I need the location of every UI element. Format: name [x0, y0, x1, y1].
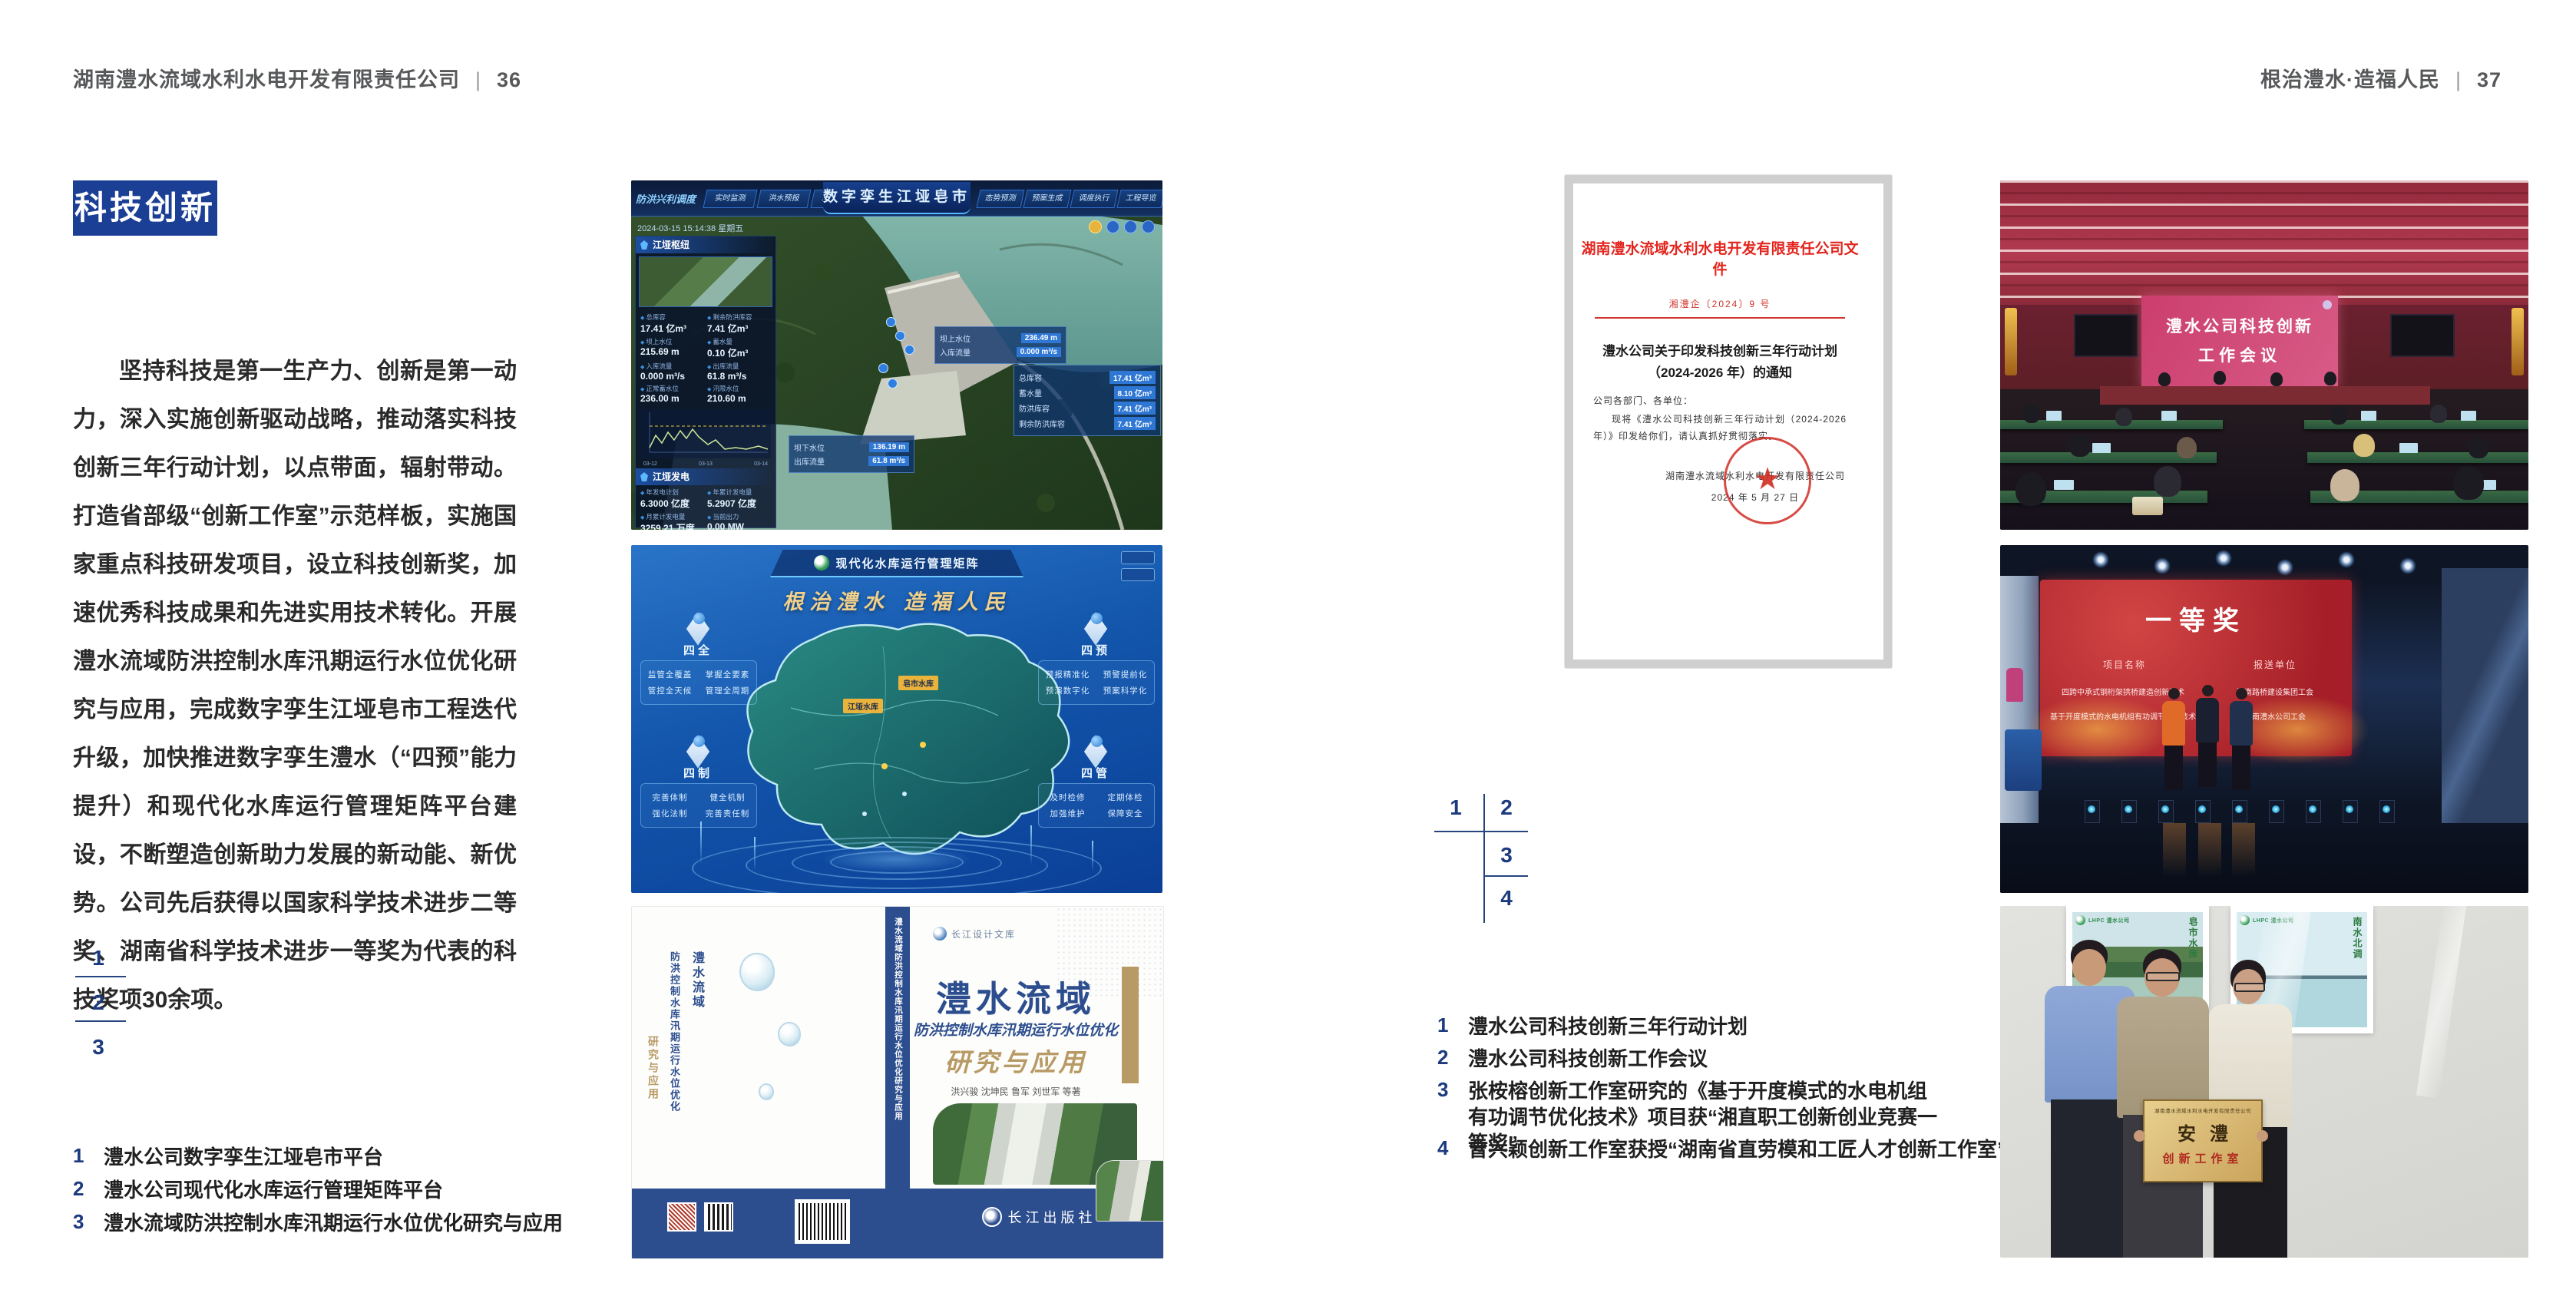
card-item: 定期体检 [1108, 792, 1143, 803]
caption-text: 澧水公司现代化水库运行管理矩阵平台 [104, 1177, 443, 1203]
screen-line-2: 工作会议 [2141, 343, 2338, 366]
book-title-accent: 研究与应用 [910, 1042, 1122, 1079]
stat-value: 7.41 亿m³ [707, 322, 771, 335]
callout-value: 17.41 亿m³ [1109, 371, 1156, 384]
stat-label: 年发电计划 [640, 488, 704, 497]
caption-right-4: 4 曾兴颖创新工作室获授“湖南省直劳模和工匠人才创新工作室” [1437, 1136, 2007, 1162]
name-card [2046, 411, 2062, 421]
stage-light-fixture [2343, 800, 2358, 823]
corner-card-siyu: 预报精准化预警提前化 预演数字化预案科学化 [1038, 660, 1155, 705]
index-divider [1434, 831, 1528, 832]
card-item: 预演数字化 [1046, 685, 1090, 696]
matrix-title-bar: 现代化水库运行管理矩阵 [770, 550, 1023, 577]
card-item: 管控全天候 [648, 685, 693, 696]
panel-title-generation: 江垭发电 [636, 468, 775, 485]
callout-row: 坝下水位136.19 m [794, 441, 909, 453]
figure-index-1: 1 [75, 946, 121, 970]
tissue-box [2132, 497, 2163, 515]
person-head [2324, 372, 2336, 385]
tab-realtime-monitor: 实时监测 [703, 190, 757, 208]
stage-spotlight-icon [2399, 557, 2416, 574]
book-spine: 澧水流域防洪控制水库汛期运行水位优化研究与应用 [885, 907, 910, 1258]
callout-row: 总库容17.41 亿m³ [1019, 371, 1156, 384]
back-cover-title-2: 防洪控制水库汛期运行水位优化 [667, 951, 682, 1113]
person-legs [2198, 742, 2217, 787]
stat-label: 坝上水位 [640, 337, 704, 346]
lhpc-logo-icon [2240, 915, 2250, 925]
callout-row: 防洪库容7.41 亿m³ [1019, 402, 1156, 415]
callout-upstream: 坝上水位236.49 m 入库流量0.000 m³/s [934, 326, 1066, 364]
figure-official-document: 湖南澧水流域水利水电开发有限责任公司文件 湘澧企〔2024〕9 号 澧水公司关于… [1565, 175, 1892, 668]
stat-label: 年累计发电量 [707, 488, 771, 497]
barcode-icon [795, 1199, 850, 1244]
page-number-left: 36 [497, 68, 521, 91]
figure-index-3: 3 [75, 1035, 121, 1060]
card-item: 掌握全要素 [706, 669, 750, 680]
header-right: 根治澧水·造福人民|37 [2260, 63, 2502, 93]
tab-situation-forecast: 态势预测 [976, 190, 1024, 208]
callout-label: 剩余防洪库容 [1019, 418, 1065, 429]
caption-number: 1 [1437, 1013, 1454, 1037]
card-item: 监管全覆盖 [648, 669, 693, 680]
header-separator: | [2455, 68, 2462, 91]
caption-number: 4 [1437, 1136, 1454, 1160]
card-item: 预报精准化 [1046, 669, 1090, 680]
stat-label: 正常蓄水位 [640, 384, 704, 393]
stat-value: 236.00 m [640, 393, 704, 404]
caption-number: 3 [73, 1210, 90, 1234]
person-body [2006, 668, 2023, 702]
marker-dot [904, 345, 914, 355]
callout-row: 坝上水位236.49 m [940, 332, 1061, 344]
tick: 03-12 [643, 461, 657, 467]
callout-label: 防洪库容 [1019, 402, 1050, 414]
light-pillar [754, 837, 756, 871]
table-row-green [2307, 452, 2528, 463]
callout-label: 总库容 [1019, 372, 1042, 383]
caption-right-1: 1 澧水公司科技创新三年行动计划 [1437, 1013, 1748, 1040]
caption-number: 2 [1437, 1046, 1454, 1070]
book-title-sub: 防洪控制水库汛期运行水位优化 [910, 1019, 1122, 1040]
person-head [2236, 688, 2247, 699]
page-number-right: 37 [2477, 68, 2502, 91]
corner-title: 四制 [640, 765, 756, 781]
stat-cell: 年累计发电量5.2907 亿度 [707, 488, 771, 510]
tab-dispatch-execution: 调度执行 [1070, 190, 1118, 208]
stage-light-fixture [2085, 800, 2100, 823]
caption-text: 澧水公司科技创新三年行动计划 [1468, 1013, 1748, 1040]
dam-photo-small [1096, 1160, 1164, 1222]
stage-spotlight-icon [2215, 550, 2232, 567]
corner-card-siquan: 监管全覆盖掌握全要素 管控全天候管理全周期 [640, 660, 757, 705]
poster-right-title: 南水北调 [2351, 917, 2364, 960]
chart-x-ticks: 03-12 03-13 03-14 [636, 461, 775, 468]
stage-light-fixture [2269, 800, 2284, 823]
index-divider [75, 1020, 126, 1022]
header-left-company: 湖南澧水流域水利水电开发有限责任公司 [73, 68, 460, 91]
menu-chip-icon [1121, 568, 1155, 581]
name-card [2054, 480, 2074, 490]
header-right-slogan: 根治澧水·造福人民 [2260, 68, 2440, 91]
screen-logo-icon [2323, 300, 2332, 309]
stat-cell: 剩余防洪库容7.41 亿m³ [707, 312, 771, 335]
user-icon [1089, 220, 1102, 233]
plaque-title: 安澧 [2144, 1119, 2261, 1146]
caption-left-2: 2 澧水公司现代化水库运行管理矩阵平台 [73, 1177, 443, 1203]
stat-value: 0.00 MW [707, 521, 771, 530]
stage-light-fixture [2232, 800, 2247, 823]
person-head [2469, 437, 2488, 458]
stat-value: 0.10 亿m³ [707, 346, 771, 359]
stat-label: 出库流量 [707, 362, 771, 371]
floor-reflection [2232, 823, 2255, 877]
stat-cell: 年发电计划6.3000 亿度 [640, 488, 704, 510]
figure-index-2: 2 [75, 990, 121, 1015]
person-head [2177, 437, 2197, 458]
stat-value: 5.2907 亿度 [707, 497, 771, 510]
lhpc-logo-icon [2075, 915, 2085, 925]
tan-accent-bar [1122, 967, 1139, 1083]
spine-title: 澧水流域防洪控制水库汛期运行水位优化研究与应用 [893, 918, 904, 1121]
hub-stats-grid: 总库容17.41 亿m³ 剩余防洪库容7.41 亿m³ 坝上水位215.69 m… [636, 310, 775, 406]
stat-value: 6.3000 亿度 [640, 497, 704, 510]
toolbar-icons [1089, 220, 1155, 233]
corner-title: 四全 [640, 642, 756, 658]
callout-label: 出库流量 [794, 455, 825, 467]
person-body [2230, 701, 2253, 746]
award-title: 一等奖 [2040, 600, 2352, 637]
stat-label: 当前出力 [707, 512, 771, 521]
callout-row: 入库流量0.000 m³/s [940, 346, 1061, 358]
corner-icon-sizhi [685, 734, 713, 762]
person-legs [2164, 746, 2183, 790]
stat-cell: 月累计发电量3259.21 万度 [640, 512, 704, 530]
plaque-company-line: 湖南澧水流域水利水电开发有限责任公司 [2144, 1106, 2261, 1114]
light-pillar [1092, 841, 1093, 871]
caption-number: 2 [73, 1177, 90, 1201]
brochure-spread: 湖南澧水流域水利水电开发有限责任公司|36 根治澧水·造福人民|37 科技创新 … [0, 0, 2576, 1306]
figure-index-1: 1 [1433, 795, 1479, 820]
person-trousers [2051, 1099, 2129, 1258]
lhpc-logo-text: LHPC 澧水公司 [2088, 917, 2130, 924]
person-head [2158, 372, 2171, 386]
timestamp: 2024-03-15 15:14:38 星期五 [637, 222, 743, 234]
callout-capacity: 总库容17.41 亿m³ 蓄水量8.10 亿m³ 防洪库容7.41 亿m³ 剩余… [1014, 365, 1161, 436]
person-head [2330, 406, 2347, 425]
publisher-logo-icon [982, 1207, 1002, 1227]
watershed-map-art [722, 616, 1083, 869]
map-tag-zaoshi: 皂市水库 [898, 676, 938, 690]
platform-title: 数字孪生江垭皂市 [823, 182, 971, 214]
card-item: 预案科学化 [1103, 685, 1148, 696]
mode-label: 防洪兴利调度 [636, 191, 696, 206]
corner-icon-siquan [685, 611, 713, 639]
document-title-line2: （2024-2026 年）的通知 [1573, 362, 1867, 381]
callout-row: 剩余防洪库容7.41 亿m³ [1019, 417, 1156, 430]
card-item: 预警提前化 [1103, 669, 1148, 680]
callout-label: 入库流量 [940, 346, 971, 358]
stat-cell: 入库流量0.000 m³/s [640, 362, 704, 382]
wall-tv-icon [2390, 314, 2455, 357]
ceiling-lights [2000, 180, 2528, 305]
stat-label: 月累计发电量 [640, 512, 704, 521]
card-item: 完善责任制 [706, 808, 750, 819]
wall-sconce-icon [2005, 308, 2017, 375]
callout-downstream: 坝下水位136.19 m 出库流量61.8 m³/s [789, 435, 914, 473]
figure-index-2: 2 [1483, 795, 1529, 820]
innovation-studio-plaque: 湖南澧水流域水利水电开发有限责任公司 安澧 创新工作室 [2143, 1099, 2263, 1182]
stat-value: 3259.21 万度 [640, 521, 704, 530]
callout-value: 8.10 亿m³ [1114, 386, 1156, 399]
water-drop-icon [739, 953, 775, 991]
book-authors: 洪兴骏 沈坤民 鲁军 刘世军 等著 [910, 1085, 1122, 1098]
corner-card-siguan: 及时检修定期体检 加强维护保障安全 [1038, 783, 1155, 828]
person-head [2202, 685, 2214, 696]
marker-dot [878, 363, 888, 373]
publisher-name: 长江出版社 [1008, 1207, 1096, 1227]
corner-icon-siyu [1083, 611, 1110, 639]
platform-header-bar: 防洪兴利调度 实时监测 洪水预报 防洪预警 数字孪生江垭皂市 态势预测 预案生成… [631, 180, 1162, 217]
body-paragraph: 坚持科技是第一生产力、创新是第一动力，深入实施创新驱动战略，推动落实科技创新三年… [73, 347, 517, 1024]
callout-value: 236.49 m [1021, 333, 1061, 343]
host-podium [2005, 729, 2042, 791]
person-head [2015, 472, 2046, 506]
caption-text: 曾兴颖创新工作室获授“湖南省直劳模和工匠人才创新工作室” [1468, 1136, 2007, 1162]
fullscreen-chip-icon [1121, 551, 1155, 564]
person-head [2154, 466, 2181, 497]
awardee-orange [2160, 688, 2187, 790]
stat-value: 0.000 m³/s [640, 371, 704, 382]
stat-cell: 蓄水量0.10 亿m³ [707, 337, 771, 359]
callout-label: 蓄水量 [1019, 387, 1042, 398]
person-head [2430, 405, 2447, 423]
lhpc-logo-icon [814, 555, 829, 570]
stage-right-panel [2442, 568, 2528, 845]
layers-icon [1106, 220, 1119, 233]
series-name: 长江设计文库 [951, 927, 1016, 941]
floor-reflection [2198, 823, 2221, 877]
caption-text: 澧水流域防洪控制水库汛期运行水位优化研究与应用 [104, 1210, 563, 1236]
wall-sconce-icon [2512, 308, 2524, 375]
stat-label: 汛限水位 [707, 384, 771, 393]
corner-card-sizhi: 完善体制健全机制 强化法制完善责任制 [640, 783, 757, 828]
stat-value: 210.60 m [707, 393, 771, 404]
figure-meeting-photo: 澧水公司科技创新 工作会议 [2000, 180, 2528, 530]
index-divider [1483, 875, 1528, 877]
card-item: 及时检修 [1050, 792, 1086, 803]
back-cover-title-3: 研究与应用 [646, 1036, 661, 1101]
figure-index-3: 3 [1483, 843, 1529, 868]
figure-digital-twin-platform: 防洪兴利调度 实时监测 洪水预报 防洪预警 数字孪生江垭皂市 态势预测 预案生成… [631, 180, 1162, 530]
card-item: 加强维护 [1050, 808, 1086, 819]
figure-award-photo: 一等奖 项目名称 报送单位 四跨中承式钢桁架拱桥建造创新技术 湖南路桥建设集团工… [2000, 545, 2528, 893]
stat-cell: 汛限水位210.60 m [707, 384, 771, 404]
person-legs [2232, 746, 2250, 790]
name-card [2399, 443, 2418, 453]
map-tag-jiangya: 江垭水库 [843, 699, 883, 713]
caption-left-1: 1 澧水公司数字孪生江垭皂市平台 [73, 1144, 383, 1170]
person-head [2214, 371, 2226, 385]
stage-spotlight-icon [2277, 559, 2293, 576]
alert-icon [1142, 220, 1155, 233]
matrix-title: 现代化水库运行管理矩阵 [835, 555, 979, 571]
person-head [2270, 372, 2283, 386]
marker-dot [888, 379, 898, 388]
column-label-org: 报送单位 [2214, 658, 2336, 671]
person-body [2196, 698, 2219, 742]
left-data-panel: 江垭枢纽 总库容17.41 亿m³ 剩余防洪库容7.41 亿m³ 坝上水位215… [635, 236, 776, 528]
qr-code-icon [706, 1204, 732, 1230]
callout-value: 0.000 m³/s [1017, 347, 1061, 357]
person-body [2162, 701, 2185, 746]
caption-number: 3 [1437, 1078, 1454, 1102]
header-left: 湖南澧水流域水利水电开发有限责任公司|36 [73, 63, 521, 93]
projection-screen: 澧水公司科技创新 工作会议 [2141, 296, 2338, 388]
stage-spotlight-icon [2338, 551, 2355, 568]
name-card [2361, 411, 2376, 421]
callout-row: 出库流量61.8 m³/s [794, 455, 909, 467]
card-item: 完善体制 [653, 792, 688, 803]
publisher-lockup: 长江出版社 [962, 1207, 1116, 1227]
document-title-line1: 澧水公司关于印发科技创新三年行动计划 [1573, 340, 1867, 359]
lhpc-logo-lockup: LHPC 澧水公司 [2075, 915, 2130, 925]
callout-value: 7.41 亿m³ [1114, 417, 1156, 430]
stat-value: 17.41 亿m³ [640, 322, 704, 335]
glasses-icon [2234, 983, 2265, 992]
award-row-org: 湖南路桥建设集团工会 [2206, 686, 2344, 697]
person-head [2023, 405, 2040, 423]
screen-glow [2025, 695, 2171, 764]
water-drop-icon [778, 1022, 801, 1046]
name-card [2161, 411, 2177, 421]
card-item: 健全机制 [710, 792, 746, 803]
person-face [2072, 949, 2106, 986]
stat-label: 蓄水量 [707, 337, 771, 346]
tab-project-tour: 工程导览 [1116, 190, 1162, 208]
glasses-icon [2146, 972, 2180, 981]
stage-light-fixture [2379, 800, 2395, 823]
caption-text: 澧水公司科技创新工作会议 [1468, 1046, 1708, 1072]
document-salutation: 公司各部门、各单位： [1593, 394, 1693, 407]
back-cover-title-1: 澧水流域 [687, 951, 706, 1010]
marker-dot [886, 317, 896, 327]
name-card [2461, 411, 2476, 421]
glass-reflection [2416, 906, 2467, 1099]
name-card [2092, 443, 2111, 453]
figure-plaque-photo: LHPC 澧水公司 皂市水库 LHPC 澧水公司 南水北调 湖南澧水流域水利水电… [2000, 906, 2528, 1258]
stat-value: 215.69 m [640, 346, 704, 357]
tick: 03-13 [699, 461, 713, 467]
corner-title: 四预 [1038, 642, 1153, 658]
presenter-suit [2194, 685, 2221, 787]
screen-line-1: 澧水公司科技创新 [2141, 314, 2338, 337]
caption-left-3: 3 澧水流域防洪控制水库汛期运行水位优化研究与应用 [73, 1210, 563, 1236]
index-divider [75, 976, 126, 977]
figure-book-cover: 澧水流域 防洪控制水库汛期运行水位优化 研究与应用 长江出版社 澧水流域防洪控制… [631, 906, 1164, 1259]
dam-thumbnail-photo [639, 256, 772, 307]
callout-value: 7.41 亿m³ [1114, 402, 1156, 415]
person-head [2115, 408, 2132, 426]
stage-spotlight-icon [2154, 557, 2171, 574]
plaque-subtitle: 创新工作室 [2144, 1150, 2261, 1166]
floor-reflection [2163, 823, 2186, 877]
marker-dot [895, 331, 905, 341]
column-label-project: 项目名称 [2063, 658, 2186, 671]
caption-number: 1 [73, 1144, 90, 1168]
stat-cell: 出库流量61.8 m³/s [707, 362, 771, 382]
locate-icon [1124, 220, 1137, 233]
card-item: 强化法制 [653, 808, 688, 819]
book-title-main: 澧水流域 [910, 971, 1122, 1022]
stat-value: 61.8 m³/s [707, 371, 771, 382]
person-hand [2134, 1130, 2145, 1142]
series-lockup: 长江设计文库 [933, 927, 1016, 941]
panel-title-hub: 江垭枢纽 [636, 236, 775, 253]
document-number: 湘澧企〔2024〕9 号 [1573, 297, 1867, 310]
tab-plan-generation: 预案生成 [1023, 190, 1071, 208]
awardee-navy [2227, 688, 2255, 790]
callout-label: 坝上水位 [940, 332, 971, 344]
callout-row: 蓄水量8.10 亿m³ [1019, 386, 1156, 399]
card-item: 保障安全 [1108, 808, 1143, 819]
callout-value: 61.8 m³/s [868, 456, 909, 466]
stage-spotlight-icon [2092, 551, 2109, 568]
tick: 03-14 [754, 461, 768, 467]
stage-light-fixture [2158, 800, 2174, 823]
card-item: 管理全周期 [706, 685, 750, 696]
document-red-header: 湖南澧水流域水利水电开发有限责任公司文件 [1581, 237, 1859, 279]
generation-stats-grid: 年发电计划6.3000 亿度 年累计发电量5.2907 亿度 月累计发电量325… [636, 485, 775, 530]
stage-floor [2000, 823, 2528, 893]
person-head [2069, 434, 2091, 457]
callout-label: 坝下水位 [794, 441, 825, 453]
person-hand [2257, 1130, 2268, 1142]
figure-matrix-platform: 现代化水库运行管理矩阵 根治澧水 造福人民 皂市水库 江垭水库 四全 监管全覆盖… [631, 545, 1162, 893]
stage-light-fixture [2121, 800, 2137, 823]
stage-light-fixture [2195, 800, 2211, 823]
stat-label: 剩余防洪库容 [707, 312, 771, 322]
stat-label: 入库流量 [640, 362, 704, 371]
caption-text: 澧水公司数字孪生江垭皂市平台 [104, 1144, 383, 1170]
light-pillar [1030, 825, 1032, 865]
wall-tv-icon [2074, 314, 2138, 357]
water-drop-icon [759, 1083, 774, 1100]
section-badge: 科技创新 [73, 180, 217, 236]
figure-index-4: 4 [1483, 886, 1529, 911]
official-seal-icon [1724, 437, 1811, 524]
water-level-sparkline [639, 409, 771, 458]
stat-cell: 当前出力0.00 MW [707, 512, 771, 530]
host-figure [2002, 666, 2028, 702]
series-logo-icon [933, 927, 947, 941]
poster-left-title: 皂市水库 [2187, 917, 2200, 960]
stat-label: 总库容 [640, 312, 704, 322]
head-table [2100, 386, 2430, 405]
stage-light-fixture [2306, 800, 2321, 823]
stat-cell: 总库容17.41 亿m³ [640, 312, 704, 335]
document-body: 现将《澧水公司科技创新三年行动计划（2024-2026 年）》印发给你们，请认真… [1593, 411, 1847, 445]
qr-code-icon [669, 1204, 695, 1230]
person-head [2168, 688, 2180, 699]
stat-cell: 正常蓄水位236.00 m [640, 384, 704, 404]
person-head [2353, 434, 2375, 457]
header-separator: | [475, 68, 481, 91]
person-head [2453, 466, 2484, 500]
tab-flood-forecast: 洪水预报 [756, 190, 811, 208]
corner-icon-siguan [1083, 734, 1110, 762]
document-red-rule [1595, 317, 1845, 319]
light-pillar [700, 822, 702, 865]
